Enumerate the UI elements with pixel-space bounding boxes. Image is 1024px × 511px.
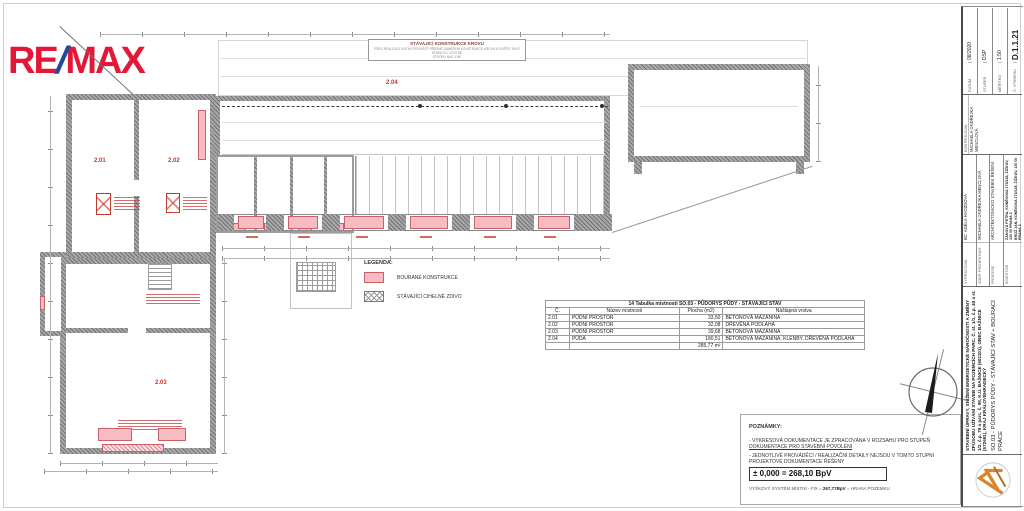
field-label: DATUM [968,62,972,94]
demolished-wall-segment [538,216,570,229]
cell-area: 180,51 [679,336,723,343]
field-label: MĚŘÍTKO [998,62,1002,94]
field-profese: PROFESE ARCHITEKTONICKO STAVEBNÍ ŘEŠENÍ [990,155,1004,286]
partition-wall [146,328,210,333]
elevation-datum-box: ± 0,000 = 268,10 BpV [749,467,887,481]
demolished-wall-segment [40,296,45,310]
roof-plane-line [222,140,606,141]
cell-layer: BETONOVÁ MAZANINA [723,315,865,322]
col-header-layer: Nášlapná vrstva [723,308,865,315]
partition-wall [134,100,139,180]
note-1-underlined: DOKUMENTACE PRO STAVEBNÍ POVOLENÍ [749,444,852,450]
partition-wall [66,328,128,333]
annotation-text-block [114,196,140,210]
masonry-pier [266,214,284,231]
elevation-system-suffix: = HRANA POZEMKU [846,486,890,491]
demolition-dim-mark [246,236,258,238]
masonry-pier [452,214,470,231]
building-c-interior [634,70,804,156]
demolished-wall-segment [474,216,512,229]
room-label-2-01: 2.01 [94,158,106,164]
project-title-cell: STAVEBNÍ ÚPRAVY, SNÍŽENÍ ENERGETICKÉ NÁR… [963,286,1022,454]
cell-layer: BETONOVÁ MAZANINA, KLENBY, DŘEVĚNÁ PODLA… [723,336,865,343]
title-block: STAVEBNÍ ÚPRAVY, SNÍŽENÍ ENERGETICKÉ NÁR… [961,6,1023,507]
roof-plane-line [222,122,606,123]
cell-no: 2.04 [546,336,570,343]
demolition-dim-mark [298,236,310,238]
remax-logo: RE/MAX [8,42,144,80]
wall-stub [634,162,642,174]
investor-line-2: BROŽ JAN, KONĚVOVA 173/128, ŽIŽKOV, 130 … [1014,155,1022,240]
cell-name: PŮDNÍ PROSTOR [569,315,679,322]
field-label: Č. VÝKRESU [1013,62,1017,94]
ladder-symbol [296,262,336,292]
legend-swatch-pink [364,272,384,283]
demolition-dim-mark [420,236,432,238]
demolished-chimney [198,110,206,160]
field-datum: DATUM 08/2020 [963,8,978,94]
table-title-row: 14 Tabulka místností SO.03 - PŮDORYS PŮD… [546,301,865,308]
ridge-point [600,104,604,108]
table-total-row: 285,77 m² [546,343,865,350]
legend-item-label: BOURANÉ KONSTRUKCE [397,275,458,281]
legend-item-label: STÁVAJÍCÍ CIHELNÉ ZDIVO [397,294,462,300]
legend-swatch-hatch [364,291,384,302]
col-header-no: Č. [546,308,570,315]
dimension-chain [60,461,218,466]
signature-cell: VYPRACOVAL BC. ADÉLA HVOZDOVÁ ZODP. PROJ… [963,154,1022,286]
masonry-pier [574,214,612,231]
demolition-annotation-box [96,193,111,215]
legend-title: LEGENDA: [364,260,462,266]
table-title: 14 Tabulka místností SO.03 - PŮDORYS PŮD… [546,301,865,308]
title-block-content: STAVEBNÍ ÚPRAVY, SNÍŽENÍ ENERGETICKÉ NÁR… [963,7,1022,506]
room-label-2-03: 2.03 [155,380,167,386]
demolition-annotation-box [166,193,180,213]
dimension-chain [48,96,53,454]
elevation-system-prefix: VÝŠKOVÝ SYSTÉM MÍSTNÍ - FIX = [749,486,823,491]
wing-floor-line [222,154,606,155]
field-label: INVESTOR [1004,242,1022,286]
cell-no: 2.03 [546,329,570,336]
field-investor: INVESTOR ŽÁKOVÁ PETRA, KONĚVOVA 173/128,… [1004,155,1022,286]
architect-logo [974,462,1012,500]
elevation-system-line: VÝŠKOVÝ SYSTÉM MÍSTNÍ - FIX = 267,77BpV … [749,486,890,492]
col-header-area: Plocha (m2) [679,308,723,315]
annotation-text-block [183,196,207,210]
cell-no: 2.01 [546,315,570,322]
cell-layer: BETONOVÁ MAZANINA [723,329,865,336]
field-value: ŽÁKOVÁ PETRA, KONĚVOVA 173/128, ŽIŽKOV, … [1004,155,1022,242]
demolition-dim-mark [544,236,556,238]
col-header-name: Název místnosti [569,308,679,315]
demolished-wall-segment [410,216,448,229]
field-zodp-projektant: ZODP. PROJEKTANT MICHAELA ONDŘEJKA MENCL… [977,155,991,286]
field-value: 1:50 [997,8,1003,62]
legend-item-existing: STÁVAJÍCÍ CIHELNÉ ZDIVO [364,291,462,302]
remax-logo-re: RE [8,40,57,82]
dimension-chain [44,469,218,474]
table-row: 2.03 PŮDNÍ PROSTOR 39,68 BETONOVÁ MAZANI… [546,329,865,336]
masonry-pier [218,214,234,231]
cell-no [546,343,570,350]
drawing-title: SO.03 - PŮDORYS PŮDY - STÁVAJÍCÍ STAV + … [991,290,1004,451]
note-2: - JEDNOTLIVÉ PROVÁDĚCÍ / REALIZAČNÍ DETA… [749,453,949,466]
field-meritko: MĚŘÍTKO 1:50 [993,8,1008,94]
field-label: VYPRACOVAL [963,242,976,286]
cell-no: 2.02 [546,322,570,329]
cell-layer: DŘEVĚNÁ PODLAHA [723,322,865,329]
field-label: ZODP. PROJEKTANT [977,242,990,286]
room-label-2-02: 2.02 [168,158,180,164]
field-value: MICHAELA ONDŘEJKA MENCLOVÁ [969,95,1022,154]
project-title: STAVEBNÍ ÚPRAVY, SNÍŽENÍ ENERGETICKÉ NÁR… [965,290,988,451]
drawing-sheet: RE/MAX STÁVAJÍCÍ KONSTRUKCE KROVU PŘED R… [0,0,1024,511]
field-value: BC. ADÉLA HVOZDOVÁ [963,155,976,242]
wing-top-wall [218,96,610,101]
field-kontroloval: KONTROLOVAL MICHAELA ONDŘEJKA MENCLOVÁ [963,94,1022,154]
wing-left-wall [214,96,220,156]
masonry-pier [388,214,406,231]
table-row: 2.04 PŮDA 180,51 BETONOVÁ MAZANINA, KLEN… [546,336,865,343]
field-cislo-vykresu: Č. VÝKRESU D.1.1.21 [1008,8,1022,94]
field-value: ARCHITEKTONICKO STAVEBNÍ ŘEŠENÍ [990,155,1003,242]
field-vypracoval: VYPRACOVAL BC. ADÉLA HVOZDOVÁ [963,155,977,286]
demolished-wall-segment [344,216,384,229]
demolition-dim-mark [356,236,368,238]
roof-note-line2: STROPU NAD 1.NP [371,55,523,59]
cell-area: 33,50 [679,315,723,322]
field-label: PROFESE [990,242,1003,286]
cell-area: 39,68 [679,329,723,336]
legend-item-demolished: BOURANÉ KONSTRUKCE [364,272,462,283]
table-row: 2.02 PŮDNÍ PROSTOR 32,08 DŘEVĚNÁ PODLAHA [546,322,865,329]
table-header-row: Č. Název místnosti Plocha (m2) Nášlapná … [546,308,865,315]
remax-logo-max: MAX [65,40,143,82]
demolished-wall-segment [98,428,132,441]
ridge-point [504,104,508,108]
cell-area: 32,08 [679,322,723,329]
cell-name: PŮDNÍ PROSTOR [569,322,679,329]
field-value: 08/2020 [967,8,973,62]
field-label: STUPEŇ [983,62,987,94]
elevation-system-value: 267,77BpV [823,486,846,491]
room-table: 14 Tabulka místností SO.03 - PŮDORYS PŮD… [545,300,865,350]
architect-logo-cell [963,454,1022,506]
roof-structure-note: STÁVAJÍCÍ KONSTRUKCE KROVU PŘED REALIZAC… [368,39,526,61]
demolished-wall-segment [238,216,264,229]
table-row: 2.01 PŮDNÍ PROSTOR 33,50 BETONOVÁ MAZANI… [546,315,865,322]
field-stupen: STUPEŇ DSP [978,8,993,94]
cell-total-area: 285,77 m² [679,343,723,350]
room-label-2-04: 2.04 [386,80,398,86]
demolished-wall-segment [158,428,186,441]
dimension-chain [222,246,610,251]
dimension-chain [222,258,227,454]
legend: LEGENDA: BOURANÉ KONSTRUKCE STÁVAJÍCÍ CI… [364,260,462,310]
building-a-interior [72,100,210,252]
cell-name: PŮDNÍ PROSTOR [569,329,679,336]
demolished-wall-segment [288,216,318,229]
cell-name: PŮDA [569,336,679,343]
cell-layer [723,343,865,350]
demolition-dim-mark [484,236,496,238]
cell-name [569,343,679,350]
interior-line [640,106,798,107]
dimension-chain [816,66,821,162]
rafter-field [355,156,610,214]
demolished-strip [102,444,164,452]
investor-line-1: ŽÁKOVÁ PETRA, KONĚVOVA 173/128, ŽIŽKOV, … [1005,155,1013,240]
dimension-chain [100,32,610,37]
drawing-number: D.1.1.21 [1011,8,1020,62]
field-value: MICHAELA ONDŘEJKA MENCLOVÁ [977,155,990,242]
ridge-line [222,106,608,107]
ridge-point [418,104,422,108]
annotation-text-block [146,292,200,304]
field-value: DSP [982,8,988,62]
stair-symbol [148,262,172,290]
meta-cell: DATUM 08/2020 STUPEŇ DSP MĚŘÍTKO 1:50 Č.… [963,8,1022,94]
masonry-pier [322,214,340,231]
masonry-pier [516,214,534,231]
roof-note-line1: PŘED REALIZACÍ NUTNO PROVÉST PŘESNÉ ZAMĚ… [371,47,523,55]
